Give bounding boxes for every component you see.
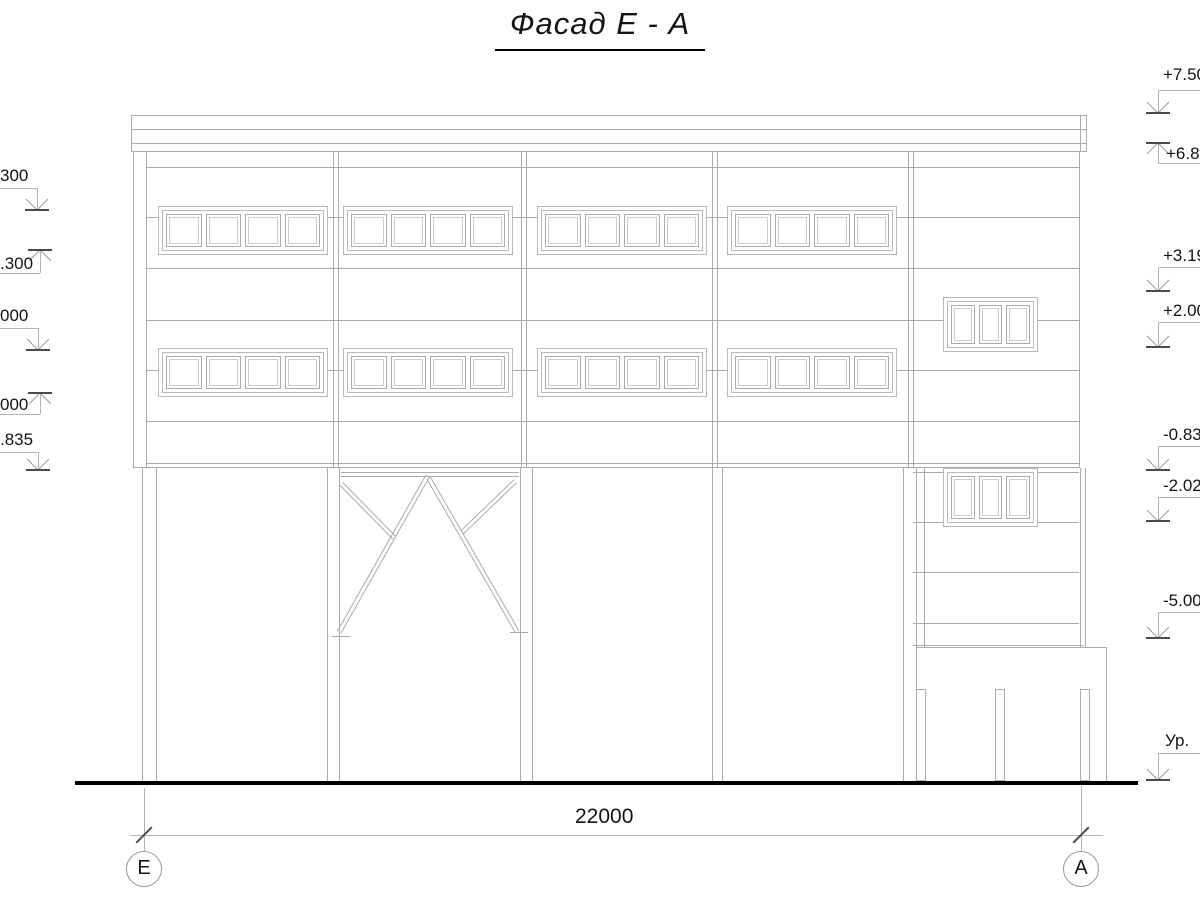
- porch-foundation: [916, 647, 1107, 782]
- axis-circle-e: Е: [126, 851, 162, 887]
- facade-joint: [146, 167, 1079, 168]
- window-glass: [394, 359, 424, 386]
- dimension-value: 22000: [575, 805, 633, 829]
- window-pane: [979, 476, 1003, 519]
- axis-circle-a: А: [1063, 851, 1099, 887]
- window-glass: [248, 359, 278, 386]
- elevation-arrow-icon: [1145, 334, 1171, 348]
- facade-joint: [146, 421, 1079, 422]
- tower-wall: [924, 468, 925, 647]
- window-pane: [664, 214, 700, 247]
- tower-wall: [1085, 468, 1086, 647]
- window-glass: [627, 359, 657, 386]
- elevation-label: -0.83: [1163, 425, 1200, 444]
- facade-drawing-canvas: Фасад Е - А ЕА300.300000000.835+7.50+6.8…: [0, 0, 1200, 900]
- column: [327, 468, 340, 782]
- window-glass: [1009, 308, 1027, 341]
- elevation-arrow-icon: [1145, 100, 1171, 114]
- window-pane: [585, 214, 621, 247]
- ribbon-window: [343, 348, 513, 397]
- window-glass: [588, 359, 618, 386]
- elevation-leader: [1158, 753, 1200, 754]
- window-glass: [857, 359, 887, 386]
- elevation-arrow-icon: [1145, 767, 1171, 781]
- drawing-title: Фасад Е - А: [495, 6, 705, 51]
- stair-window: [943, 297, 1038, 352]
- elevation-arrow-icon: [24, 197, 50, 211]
- column: [142, 468, 157, 782]
- elevation-label: .835: [0, 430, 33, 449]
- window-pane: [351, 356, 387, 389]
- window-glass: [954, 308, 972, 341]
- facade-joint-v: [712, 151, 713, 468]
- window-glass: [738, 359, 768, 386]
- window-glass: [667, 359, 697, 386]
- window-glass: [817, 359, 847, 386]
- window-pane: [430, 214, 466, 247]
- dimension-line: [130, 835, 1103, 836]
- window-glass: [473, 359, 503, 386]
- elevation-leader: [0, 188, 37, 189]
- window-glass: [817, 217, 847, 244]
- porch-post: [916, 689, 926, 781]
- elevation-label: +7.50: [1163, 65, 1200, 84]
- elevation-label: 000: [0, 306, 28, 325]
- tower-joint: [913, 645, 1084, 646]
- window-pane: [245, 214, 281, 247]
- window-pane: [814, 356, 850, 389]
- porch-post: [1080, 689, 1090, 781]
- ribbon-window: [537, 206, 707, 255]
- tower-joint: [913, 572, 1079, 573]
- window-glass: [982, 479, 1000, 516]
- window-glass: [354, 359, 384, 386]
- window-pane: [430, 356, 466, 389]
- elevation-arrow-icon: [1145, 457, 1171, 471]
- brace-diagonal: [427, 477, 519, 632]
- window-pane: [951, 476, 975, 519]
- facade-joint-v: [526, 151, 527, 468]
- tower-wall: [1080, 468, 1081, 647]
- column: [712, 468, 723, 782]
- window-pane: [545, 356, 581, 389]
- elevation-arrow-icon: [1145, 508, 1171, 522]
- elevation-leader: [0, 452, 38, 453]
- window-pane: [585, 356, 621, 389]
- brace-diagonal: [461, 479, 517, 534]
- window-pane: [166, 214, 202, 247]
- porch-post: [995, 689, 1005, 781]
- window-glass: [169, 217, 199, 244]
- ribbon-window: [537, 348, 707, 397]
- window-frame: [162, 352, 324, 393]
- window-pane: [206, 214, 242, 247]
- elevation-label: +3.19: [1163, 246, 1200, 265]
- elevation-label: +2.00: [1163, 301, 1200, 320]
- window-glass: [778, 217, 808, 244]
- facade-joint: [146, 320, 1079, 321]
- elevation-label: +6.8: [1166, 144, 1200, 163]
- elevation-leader: [0, 414, 40, 415]
- facade-joint: [146, 463, 1079, 464]
- window-glass: [248, 217, 278, 244]
- window-pane: [1006, 305, 1030, 344]
- window-glass: [588, 217, 618, 244]
- window-pane: [545, 214, 581, 247]
- window-glass: [169, 359, 199, 386]
- window-pane: [1006, 476, 1030, 519]
- elevation-leader: [0, 273, 40, 274]
- window-glass: [548, 217, 578, 244]
- elevation-label: 000: [0, 395, 28, 414]
- window-pane: [735, 356, 771, 389]
- elevation-leader: [1158, 267, 1200, 268]
- elevation-leader: [1158, 90, 1200, 91]
- roof-band: [131, 115, 1087, 152]
- elevation-leader: [0, 328, 38, 329]
- window-frame: [347, 352, 509, 393]
- roof-band-line: [131, 129, 1086, 130]
- roof-band-edge: [1080, 115, 1081, 151]
- facade-joint-v: [913, 151, 914, 468]
- elevation-label: .300: [0, 254, 33, 273]
- window-frame: [162, 210, 324, 251]
- elevation-arrow-icon: [25, 337, 51, 351]
- facade-joint-v: [338, 151, 339, 468]
- facade-joint: [146, 268, 1079, 269]
- window-frame: [731, 210, 893, 251]
- window-pane: [245, 356, 281, 389]
- elevation-arrow-icon: [1145, 625, 1171, 639]
- ribbon-window: [727, 348, 897, 397]
- window-glass: [354, 217, 384, 244]
- window-glass: [473, 217, 503, 244]
- window-glass: [288, 359, 318, 386]
- window-pane: [470, 356, 506, 389]
- window-glass: [738, 217, 768, 244]
- elevation-leader: [1158, 163, 1200, 164]
- elevation-arrow-icon: [27, 392, 53, 406]
- window-frame: [347, 210, 509, 251]
- elevation-label: -2.02: [1163, 476, 1200, 495]
- window-glass: [627, 217, 657, 244]
- elevation-label: -5.00: [1163, 591, 1200, 610]
- window-glass: [778, 359, 808, 386]
- window-glass: [857, 217, 887, 244]
- window-glass: [209, 217, 239, 244]
- window-glass: [667, 217, 697, 244]
- dimension-extension-line: [1081, 786, 1082, 851]
- window-pane: [285, 214, 321, 247]
- facade-joint-v: [333, 151, 334, 468]
- window-glass: [954, 479, 972, 516]
- elevation-leader: [1158, 497, 1200, 498]
- window-frame: [731, 352, 893, 393]
- drawing-title-row: Фасад Е - А: [0, 6, 1200, 51]
- window-pane: [775, 214, 811, 247]
- window-pane: [285, 356, 321, 389]
- tower-joint: [913, 623, 1079, 624]
- window-pane: [391, 214, 427, 247]
- elevation-label: 300: [0, 166, 28, 185]
- dimension-extension-line: [144, 788, 145, 851]
- facade-edge: [146, 151, 147, 468]
- window-pane: [624, 356, 660, 389]
- ribbon-window: [158, 206, 328, 255]
- ribbon-window: [343, 206, 513, 255]
- elevation-leader: [1158, 322, 1200, 323]
- window-pane: [166, 356, 202, 389]
- column: [903, 468, 917, 782]
- window-pane: [951, 305, 975, 344]
- ribbon-window: [158, 348, 328, 397]
- window-glass: [209, 359, 239, 386]
- window-pane: [664, 356, 700, 389]
- facade-joint-v: [521, 151, 522, 468]
- brace-diagonal: [337, 475, 430, 634]
- window-glass: [433, 359, 463, 386]
- stair-window: [943, 468, 1038, 527]
- window-frame: [541, 210, 703, 251]
- facade-joint-v: [908, 151, 909, 468]
- window-frame: [947, 301, 1034, 348]
- window-pane: [624, 214, 660, 247]
- ground-line: [75, 781, 1138, 785]
- window-glass: [433, 217, 463, 244]
- brace-diagonal: [339, 482, 396, 539]
- elevation-leader: [1158, 612, 1200, 613]
- elevation-arrow-icon: [1145, 278, 1171, 292]
- window-pane: [854, 214, 890, 247]
- facade-joint-v: [717, 151, 718, 468]
- window-frame: [947, 472, 1034, 523]
- window-glass: [288, 217, 318, 244]
- window-pane: [206, 356, 242, 389]
- roof-band-line: [131, 143, 1086, 144]
- window-pane: [470, 214, 506, 247]
- elevation-label: Ур.: [1165, 731, 1200, 750]
- window-glass: [548, 359, 578, 386]
- window-pane: [979, 305, 1003, 344]
- window-pane: [854, 356, 890, 389]
- window-pane: [775, 356, 811, 389]
- window-pane: [735, 214, 771, 247]
- window-glass: [1009, 479, 1027, 516]
- window-pane: [391, 356, 427, 389]
- column: [520, 468, 533, 782]
- window-pane: [814, 214, 850, 247]
- elevation-leader: [1158, 446, 1200, 447]
- window-frame: [541, 352, 703, 393]
- window-glass: [982, 308, 1000, 341]
- window-glass: [394, 217, 424, 244]
- window-pane: [351, 214, 387, 247]
- ribbon-window: [727, 206, 897, 255]
- elevation-arrow-icon: [25, 457, 51, 471]
